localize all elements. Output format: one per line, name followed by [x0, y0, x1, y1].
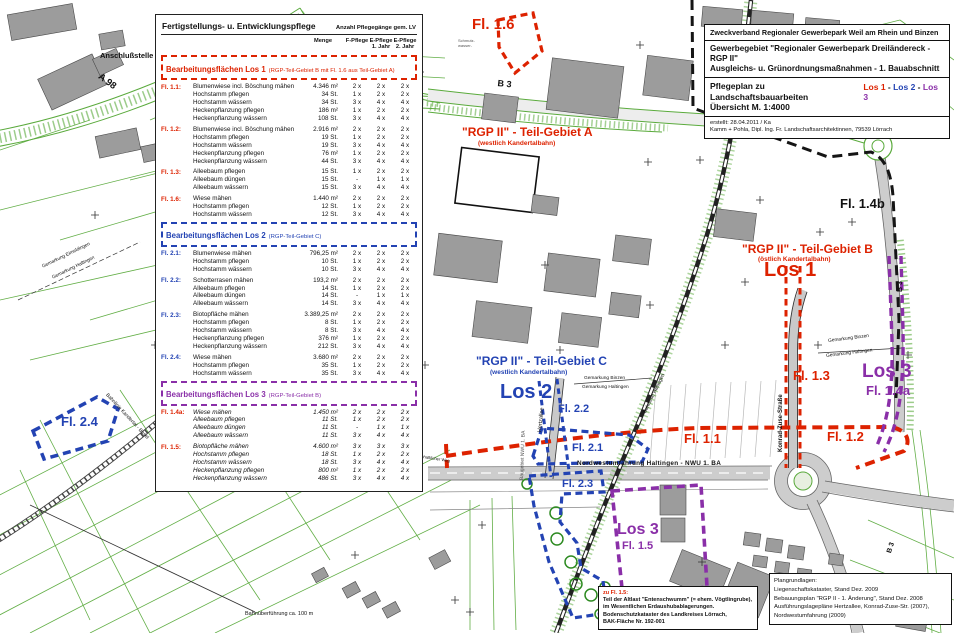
label-fl-1-3: Fl. 1.3: [793, 369, 830, 382]
note-altlast-title: zu Fl. 1.5:: [603, 590, 753, 597]
task-cell: Alleebaum pflegen: [193, 285, 301, 293]
note-line: Liegenschaftskataster, Stand Dez. 2009: [774, 586, 947, 595]
flaeche-label: Fl. 1.6:: [161, 195, 193, 219]
e1-cell: 2 x: [369, 126, 393, 134]
f-pflege-cell: 1 x: [345, 258, 369, 266]
e1-cell: 3 x: [369, 443, 393, 451]
title-block-client: Zweckverband Regionaler Gewerbepark Weil…: [705, 25, 949, 40]
task-cell: Hochstamm wässern: [193, 370, 301, 378]
label-area-a-sub: (westlich Kandertalbahn): [478, 141, 555, 148]
label-area-c-title: "RGP II" - Teil-Gebiet C: [476, 355, 607, 367]
task-cell: Hochstamm pflegen: [193, 134, 301, 142]
f-pflege-cell: 1 x: [345, 451, 369, 459]
task-cell: Heckenpflanzung pflegen: [193, 467, 301, 475]
care-row: Heckenpflanzung pflegen186 m²1 x2 x2 x: [193, 107, 417, 115]
e2-cell: 4 x: [393, 475, 417, 483]
label-fl-1-1: Fl. 1.1: [684, 432, 721, 445]
label-los-3-right: Los 3: [862, 362, 912, 381]
menge-cell: 14 St.: [301, 285, 345, 293]
menge-cell: 14 St.: [301, 300, 345, 308]
f-pflege-cell: 1 x: [345, 285, 369, 293]
menge-cell: 15 St.: [301, 184, 345, 192]
plan-scale: Übersicht M. 1:4000: [710, 102, 863, 113]
e1-cell: 2 x: [369, 203, 393, 211]
care-table-header: Fertigstellungs- u. Entwicklungspflege A…: [161, 18, 417, 35]
care-row: Hochstamm wässern34 St.3 x4 x4 x: [193, 99, 417, 107]
e2-cell: 4 x: [393, 459, 417, 467]
f-pflege-cell: 3 x: [345, 327, 369, 335]
care-row: Heckenpflanzung pflegen76 m²1 x2 x2 x: [193, 150, 417, 158]
flaeche-label: Fl. 1.2:: [161, 126, 193, 166]
menge-cell: 10 St.: [301, 266, 345, 274]
note-plangrundlagen: Plangrundlagen: Liegenschaftskataster, S…: [769, 573, 952, 625]
task-cell: Biotopfläche mähen: [193, 311, 301, 319]
f-pflege-cell: 3 x: [345, 158, 369, 166]
label-bahnueberfuehrung: Bahnüberführung ca. 100 m: [245, 612, 313, 618]
f-pflege-cell: 1 x: [345, 319, 369, 327]
menge-cell: 34 St.: [301, 99, 345, 107]
menge-cell: 376 m²: [301, 335, 345, 343]
e1-cell: 4 x: [369, 142, 393, 150]
menge-cell: 15 St.: [301, 176, 345, 184]
menge-cell: 11 St.: [301, 416, 345, 424]
care-row: Alleebaum wässern11 St.3 x4 x4 x: [193, 432, 417, 440]
e2-cell: 4 x: [393, 142, 417, 150]
e2-cell: 2 x: [393, 107, 417, 115]
task-cell: Hochstamm wässern: [193, 266, 301, 274]
care-row: Wiese mähen1.440 m²2 x2 x2 x: [193, 195, 417, 203]
title-block-plan: Pflegeplan zu Landschaftsbauarbeiten Übe…: [705, 77, 949, 116]
care-group: Fl. 2.4:Wiese mähen3.680 m²2 x2 x2 xHoch…: [161, 354, 417, 378]
e2-cell: 2 x: [393, 91, 417, 99]
e1-cell: 2 x: [369, 416, 393, 424]
care-row: Heckenpflanzung wässern212 St.3 x4 x4 x: [193, 343, 417, 351]
e2-cell: 4 x: [393, 343, 417, 351]
care-row: Hochstamm pflegen35 St.1 x2 x2 x: [193, 362, 417, 370]
project-line-2: Ausgleichs- u. Grünordnungsmaßnahmen - 1…: [710, 64, 944, 74]
task-cell: Hochstamm wässern: [193, 327, 301, 335]
e2-cell: 2 x: [393, 335, 417, 343]
care-row: Hochstamm wässern12 St.3 x4 x4 x: [193, 211, 417, 219]
label-road-konrad-zuse: Konrad-Zuse-Straße: [778, 394, 784, 452]
care-row: Alleebaum pflegen14 St.1 x2 x2 x: [193, 285, 417, 293]
f-pflege-cell: 3 x: [345, 211, 369, 219]
section-heading: Bearbeitungsflächen Los 2(RGP-Teil-Gebie…: [161, 222, 417, 247]
lot-1: Los 1: [863, 82, 885, 92]
care-row: Hochstamm pflegen18 St.1 x2 x2 x: [193, 451, 417, 459]
f-pflege-cell: 1 x: [345, 150, 369, 158]
f-pflege-cell: -: [345, 424, 369, 432]
note-altlast-lines: Teil der Altlast "Entenschwumm" (= ehem.…: [603, 597, 753, 626]
care-group: Fl. 1.5:Biotopfläche mähen4.600 m²3 x3 x…: [161, 443, 417, 483]
menge-cell: 34 St.: [301, 91, 345, 99]
e2-cell: 2 x: [393, 467, 417, 475]
task-cell: Schotterrasen mähen: [193, 277, 301, 285]
care-table-title: Fertigstellungs- u. Entwicklungspflege: [162, 21, 316, 31]
note-line: Ausführungslagepläne Hertzallee, Konrad-…: [774, 603, 947, 612]
care-group: Fl. 1.1:Blumenwiese incl. Böschung mähen…: [161, 83, 417, 123]
task-cell: Heckenpflanzung pflegen: [193, 107, 301, 115]
f-pflege-cell: 3 x: [345, 184, 369, 192]
care-row: Alleebaum pflegen11 St.1 x2 x2 x: [193, 416, 417, 424]
menge-cell: 19 St.: [301, 142, 345, 150]
e1-cell: 2 x: [369, 362, 393, 370]
menge-cell: 35 St.: [301, 362, 345, 370]
e2-cell: 2 x: [393, 150, 417, 158]
note-plangrundlagen-title: Plangrundlagen:: [774, 577, 947, 586]
note-line: Bebauungsplan "RGP II - 1. Änderung", St…: [774, 595, 947, 604]
lot-2: Los 2: [893, 82, 915, 92]
care-row: Blumenwiese mähen796,25 m²2 x2 x2 x: [193, 250, 417, 258]
f-pflege-cell: 2 x: [345, 83, 369, 91]
task-cell: Alleebaum wässern: [193, 432, 301, 440]
e1-cell: 4 x: [369, 99, 393, 107]
care-table-body: Bearbeitungsflächen Los 1(RGP-Teil-Gebie…: [161, 55, 417, 482]
menge-cell: 2.916 m²: [301, 126, 345, 134]
menge-cell: 76 m²: [301, 150, 345, 158]
f-pflege-cell: 3 x: [345, 300, 369, 308]
f-pflege-cell: 1 x: [345, 335, 369, 343]
e1-cell: 4 x: [369, 158, 393, 166]
f-pflege-cell: 1 x: [345, 168, 369, 176]
e1-cell: 1 x: [369, 424, 393, 432]
menge-cell: 8 St.: [301, 327, 345, 335]
care-row: Heckenpflanzung wässern108 St.3 x4 x4 x: [193, 115, 417, 123]
menge-cell: 3.389,25 m²: [301, 311, 345, 319]
e1-cell: 4 x: [369, 370, 393, 378]
label-road-nwu: Nordwestumfahrung Haltingen - NWU 1. BA: [577, 461, 721, 467]
care-row: Hochstamm wässern35 St.3 x4 x4 x: [193, 370, 417, 378]
e2-cell: 2 x: [393, 285, 417, 293]
e2-cell: 4 x: [393, 211, 417, 219]
care-table-title-right: Anzahl Pflegegänge gem. LV: [336, 25, 416, 31]
e1-cell: 2 x: [369, 354, 393, 362]
label-schmutzwasser-2: wasser-: [458, 44, 472, 48]
e2-cell: 2 x: [393, 134, 417, 142]
care-row: Alleebaum wässern15 St.3 x4 x4 x: [193, 184, 417, 192]
task-cell: Alleebaum pflegen: [193, 168, 301, 176]
menge-cell: 8 St.: [301, 319, 345, 327]
label-gemarkung-haltingen-center: Gemarkung Haltingen: [582, 386, 629, 391]
label-los-2: Los 2: [500, 382, 552, 402]
label-area-b-title: "RGP II" - Teil-Gebiet B: [742, 243, 873, 255]
f-pflege-cell: 3 x: [345, 475, 369, 483]
e1-cell: 4 x: [369, 266, 393, 274]
menge-cell: 796,25 m²: [301, 250, 345, 258]
task-cell: Blumenwiese incl. Böschung mähen: [193, 126, 301, 134]
e2-cell: 4 x: [393, 158, 417, 166]
care-row: Hochstamm wässern10 St.3 x4 x4 x: [193, 266, 417, 274]
care-group: Fl. 1.4a:Wiese mähen1.450 m²2 x2 x2 xAll…: [161, 409, 417, 441]
e1-cell: 4 x: [369, 184, 393, 192]
note-line: Nordwestumfahrung (2009): [774, 612, 947, 621]
f-pflege-cell: -: [345, 176, 369, 184]
e2-cell: 2 x: [393, 258, 417, 266]
care-row: Hochstamm wässern8 St.3 x4 x4 x: [193, 327, 417, 335]
note-line: Bodenschutzkataster des Landkreises Lörr…: [603, 612, 753, 619]
e1-cell: 4 x: [369, 459, 393, 467]
f-pflege-cell: 1 x: [345, 416, 369, 424]
care-group: Fl. 1.2:Blumenwiese incl. Böschung mähen…: [161, 126, 417, 166]
menge-cell: 4.600 m²: [301, 443, 345, 451]
task-cell: Heckenpflanzung wässern: [193, 343, 301, 351]
f-pflege-cell: 2 x: [345, 195, 369, 203]
e1-cell: 2 x: [369, 285, 393, 293]
e1-cell: 4 x: [369, 211, 393, 219]
label-fl-2-2: Fl. 2.2: [558, 404, 589, 415]
e2-cell: 2 x: [393, 311, 417, 319]
menge-cell: 44 St.: [301, 158, 345, 166]
e1-cell: 2 x: [369, 150, 393, 158]
title-block: Zweckverband Regionaler Gewerbepark Weil…: [704, 24, 950, 139]
label-los-3-bottom: Los 3: [617, 522, 659, 538]
section-heading: Bearbeitungsflächen Los 3(RGP-Teil-Gebie…: [161, 381, 417, 406]
care-row: Hochstamm pflegen10 St.1 x2 x2 x: [193, 258, 417, 266]
e1-cell: 1 x: [369, 176, 393, 184]
care-row: Blumenwiese incl. Böschung mähen2.916 m²…: [193, 126, 417, 134]
task-cell: Alleebaum düngen: [193, 176, 301, 184]
care-row: Hochstamm pflegen34 St.1 x2 x2 x: [193, 91, 417, 99]
e2-cell: 4 x: [393, 184, 417, 192]
col-f-pflege: F-Pflege: [345, 38, 369, 50]
e1-cell: 2 x: [369, 195, 393, 203]
e2-cell: 4 x: [393, 115, 417, 123]
f-pflege-cell: 3 x: [345, 343, 369, 351]
e2-cell: 4 x: [393, 370, 417, 378]
label-fl-1-5: Fl. 1.5: [622, 541, 653, 552]
e2-cell: 4 x: [393, 300, 417, 308]
task-cell: Alleebaum düngen: [193, 292, 301, 300]
e1-cell: 4 x: [369, 300, 393, 308]
e1-cell: 2 x: [369, 277, 393, 285]
task-cell: Heckenpflanzung pflegen: [193, 335, 301, 343]
f-pflege-cell: 3 x: [345, 432, 369, 440]
task-cell: Hochstamm wässern: [193, 99, 301, 107]
e2-cell: 2 x: [393, 195, 417, 203]
e1-cell: 2 x: [369, 83, 393, 91]
task-cell: Hochstamm pflegen: [193, 362, 301, 370]
task-cell: Hochstamm pflegen: [193, 258, 301, 266]
label-fl-1-6: Fl. 1.6: [472, 17, 515, 32]
care-row: Heckenpflanzung pflegen376 m²1 x2 x2 x: [193, 335, 417, 343]
section-heading: Bearbeitungsflächen Los 1(RGP-Teil-Gebie…: [161, 55, 417, 80]
f-pflege-cell: 2 x: [345, 311, 369, 319]
f-pflege-cell: 3 x: [345, 115, 369, 123]
menge-cell: 11 St.: [301, 432, 345, 440]
plan-title: Pflegeplan zu Landschaftsbauarbeiten: [710, 81, 863, 102]
e1-cell: 2 x: [369, 168, 393, 176]
care-group: Fl. 2.1:Blumenwiese mähen796,25 m²2 x2 x…: [161, 250, 417, 274]
author: Kamm + Pohla, Dipl. Ing. Fr. Landschafts…: [710, 127, 944, 135]
menge-cell: 15 St.: [301, 168, 345, 176]
title-block-meta: erstellt: 28.04.2011 / Ka Kamm + Pohla, …: [705, 116, 949, 138]
task-cell: Alleebaum düngen: [193, 424, 301, 432]
task-cell: Hochstamm pflegen: [193, 91, 301, 99]
note-altlast: zu Fl. 1.5: Teil der Altlast "Entenschwu…: [598, 586, 758, 630]
e1-cell: 4 x: [369, 327, 393, 335]
task-cell: Hochstamm wässern: [193, 211, 301, 219]
care-row: Heckenpflanzung wässern486 St.3 x4 x4 x: [193, 475, 417, 483]
f-pflege-cell: 1 x: [345, 91, 369, 99]
menge-cell: 800 m²: [301, 467, 345, 475]
menge-cell: 4.346 m²: [301, 83, 345, 91]
menge-cell: 212 St.: [301, 343, 345, 351]
care-row: Biotopfläche mähen3.389,25 m²2 x2 x2 x: [193, 311, 417, 319]
care-row: Wiese mähen3.680 m²2 x2 x2 x: [193, 354, 417, 362]
care-row: Biotopfläche mähen4.600 m²3 x3 x3 x: [193, 443, 417, 451]
menge-cell: 108 St.: [301, 115, 345, 123]
e1-cell: 1 x: [369, 292, 393, 300]
e2-cell: 2 x: [393, 168, 417, 176]
care-row: Alleebaum düngen11 St.-1 x1 x: [193, 424, 417, 432]
menge-cell: 12 St.: [301, 203, 345, 211]
label-fl-2-4: Fl. 2.4: [61, 415, 98, 428]
care-row: Hochstamm pflegen19 St.1 x2 x2 x: [193, 134, 417, 142]
e1-cell: 4 x: [369, 115, 393, 123]
task-cell: Blumenwiese incl. Böschung mähen: [193, 83, 301, 91]
e2-cell: 4 x: [393, 432, 417, 440]
e2-cell: 2 x: [393, 83, 417, 91]
project-line-1: Gewerbegebiet "Regionaler Gewerbepark Dr…: [710, 44, 944, 64]
e2-cell: 4 x: [393, 99, 417, 107]
label-gemarkung-binzen-center: Gemarkung Binzen: [584, 377, 625, 382]
care-row: Hochstamm pflegen8 St.1 x2 x2 x: [193, 319, 417, 327]
e1-cell: 2 x: [369, 335, 393, 343]
e1-cell: 2 x: [369, 467, 393, 475]
task-cell: Hochstamm wässern: [193, 459, 301, 467]
f-pflege-cell: 1 x: [345, 134, 369, 142]
e1-cell: 2 x: [369, 258, 393, 266]
f-pflege-cell: 3 x: [345, 459, 369, 467]
e1-cell: 4 x: [369, 432, 393, 440]
menge-cell: 35 St.: [301, 370, 345, 378]
f-pflege-cell: 2 x: [345, 354, 369, 362]
note-line: BAK-Fläche Nr. 192-001: [603, 619, 753, 626]
menge-cell: 3.680 m²: [301, 354, 345, 362]
e2-cell: 2 x: [393, 126, 417, 134]
task-cell: Biotopfläche mähen: [193, 443, 301, 451]
e1-cell: 2 x: [369, 409, 393, 417]
care-row: Alleebaum düngen15 St.-1 x1 x: [193, 176, 417, 184]
care-row: Schotterrasen mähen193,2 m²2 x2 x2 x: [193, 277, 417, 285]
menge-cell: 10 St.: [301, 258, 345, 266]
care-row: Alleebaum wässern14 St.3 x4 x4 x: [193, 300, 417, 308]
e2-cell: 2 x: [393, 451, 417, 459]
e2-cell: 2 x: [393, 319, 417, 327]
task-cell: Heckenpflanzung pflegen: [193, 150, 301, 158]
task-cell: Hochstamm pflegen: [193, 203, 301, 211]
care-group: Fl. 1.3:Alleebaum pflegen15 St.1 x2 x2 x…: [161, 168, 417, 192]
care-group: Fl. 2.2:Schotterrasen mähen193,2 m²2 x2 …: [161, 277, 417, 309]
e2-cell: 2 x: [393, 362, 417, 370]
task-cell: Blumenwiese mähen: [193, 250, 301, 258]
menge-cell: 186 m²: [301, 107, 345, 115]
f-pflege-cell: 3 x: [345, 142, 369, 150]
flaeche-label: Fl. 1.5:: [161, 443, 193, 483]
care-row: Wiese mähen1.450 m²2 x2 x2 x: [193, 409, 417, 417]
e2-cell: 1 x: [393, 424, 417, 432]
lots-legend: Los 1 - Los 2 - Los 3: [863, 82, 944, 113]
care-group: Fl. 1.6:Wiese mähen1.440 m²2 x2 x2 xHoch…: [161, 195, 417, 219]
e2-cell: 1 x: [393, 176, 417, 184]
menge-cell: 1.450 m²: [301, 409, 345, 417]
f-pflege-cell: 3 x: [345, 266, 369, 274]
label-area-c-sub: (westlich Kandertalbahn): [490, 370, 567, 377]
e2-cell: 2 x: [393, 416, 417, 424]
e1-cell: 2 x: [369, 311, 393, 319]
task-cell: Hochstamm wässern: [193, 142, 301, 150]
note-line: im Wesentlichen Erdaushubablagerungen.: [603, 604, 753, 611]
task-cell: Wiese mähen: [193, 195, 301, 203]
label-area-a-title: "RGP II" - Teil-Gebiet A: [462, 126, 593, 138]
task-cell: Alleebaum wässern: [193, 300, 301, 308]
f-pflege-cell: 3 x: [345, 443, 369, 451]
care-group: Fl. 2.3:Biotopfläche mähen3.389,25 m²2 x…: [161, 311, 417, 351]
f-pflege-cell: -: [345, 292, 369, 300]
menge-cell: 18 St.: [301, 459, 345, 467]
label-road-b3-top: B 3: [497, 79, 512, 89]
e1-cell: 2 x: [369, 451, 393, 459]
menge-cell: 19 St.: [301, 134, 345, 142]
flaeche-label: Fl. 2.2:: [161, 277, 193, 309]
care-row: Heckenpflanzung wässern44 St.3 x4 x4 x: [193, 158, 417, 166]
pflegeplan-canvas: Fl. 1.6 "RGP II" - Teil-Gebiet A (westli…: [0, 0, 954, 633]
task-cell: Alleebaum wässern: [193, 184, 301, 192]
care-row: Alleebaum pflegen15 St.1 x2 x2 x: [193, 168, 417, 176]
care-row: Blumenwiese incl. Böschung mähen4.346 m²…: [193, 83, 417, 91]
label-los-1: Los 1: [764, 260, 816, 280]
e1-cell: 2 x: [369, 107, 393, 115]
flaeche-label: Fl. 1.4a:: [161, 409, 193, 441]
e2-cell: 4 x: [393, 266, 417, 274]
label-fl-2-3: Fl. 2.3: [562, 479, 593, 490]
f-pflege-cell: 2 x: [345, 277, 369, 285]
f-pflege-cell: 2 x: [345, 126, 369, 134]
menge-cell: 11 St.: [301, 424, 345, 432]
e1-cell: 4 x: [369, 475, 393, 483]
menge-cell: 18 St.: [301, 451, 345, 459]
e1-cell: 2 x: [369, 250, 393, 258]
menge-cell: 14 St.: [301, 292, 345, 300]
care-row: Heckenpflanzung pflegen800 m²1 x2 x2 x: [193, 467, 417, 475]
care-row: Hochstamm wässern19 St.3 x4 x4 x: [193, 142, 417, 150]
task-cell: Hochstamm pflegen: [193, 451, 301, 459]
col-e-pflege-2: E-Pflege2. Jahr: [393, 38, 417, 50]
f-pflege-cell: 3 x: [345, 99, 369, 107]
f-pflege-cell: 2 x: [345, 409, 369, 417]
menge-cell: 486 St.: [301, 475, 345, 483]
f-pflege-cell: 1 x: [345, 362, 369, 370]
e1-cell: 4 x: [369, 343, 393, 351]
f-pflege-cell: 2 x: [345, 250, 369, 258]
flaeche-label: Fl. 2.3:: [161, 311, 193, 351]
flaeche-label: Fl. 2.1:: [161, 250, 193, 274]
task-cell: Heckenpflanzung wässern: [193, 115, 301, 123]
task-cell: Wiese mähen: [193, 354, 301, 362]
menge-cell: 1.440 m²: [301, 195, 345, 203]
label-anschlussstelle: Anschlußstelle: [100, 52, 153, 60]
care-row: Hochstamm pflegen12 St.1 x2 x2 x: [193, 203, 417, 211]
task-cell: Heckenpflanzung wässern: [193, 475, 301, 483]
e2-cell: 3 x: [393, 443, 417, 451]
menge-cell: 193,2 m²: [301, 277, 345, 285]
e2-cell: 2 x: [393, 203, 417, 211]
col-e-pflege-1: E-Pflege1. Jahr: [369, 38, 393, 50]
e1-cell: 2 x: [369, 134, 393, 142]
e2-cell: 2 x: [393, 354, 417, 362]
label-fl-1-4a: Fl. 1.4a: [866, 384, 910, 397]
note-line: Teil der Altlast "Entenschwumm" (= ehem.…: [603, 597, 753, 604]
